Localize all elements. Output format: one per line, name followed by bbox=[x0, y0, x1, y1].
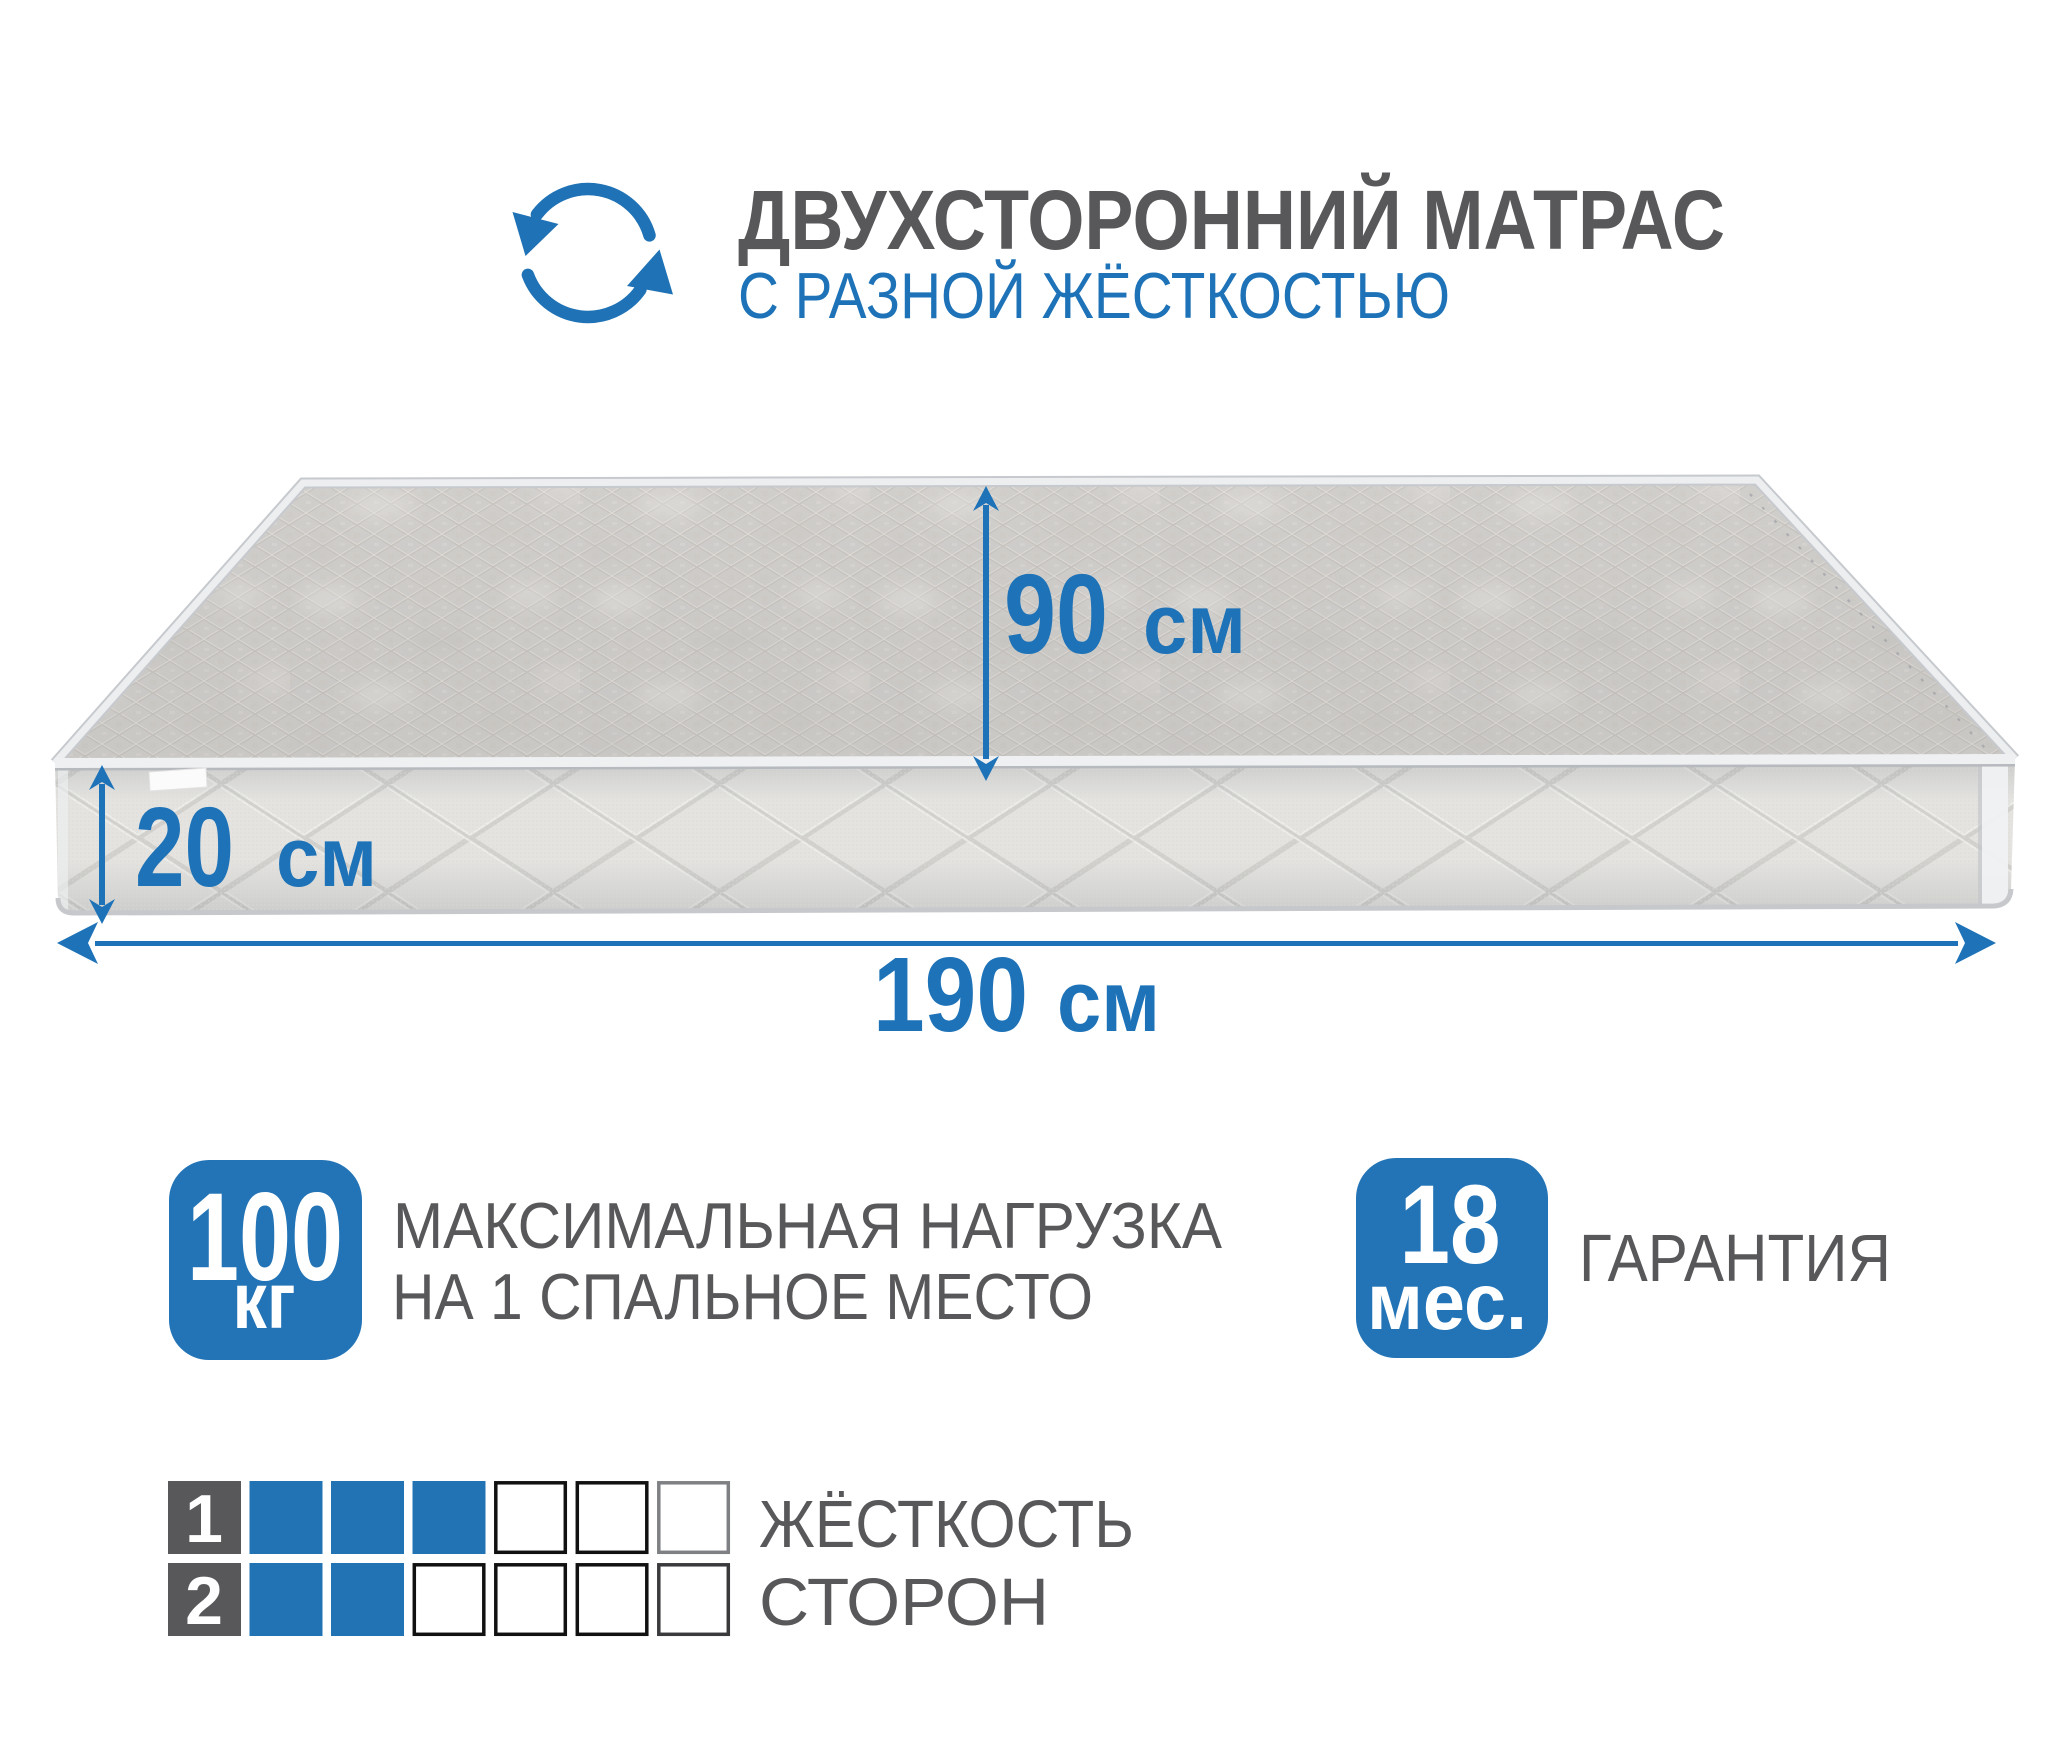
svg-text:см: см bbox=[276, 810, 377, 904]
svg-text:НА 1 СПАЛЬНОЕ МЕСТО: НА 1 СПАЛЬНОЕ МЕСТО bbox=[392, 1260, 1093, 1333]
svg-text:СТОРОН: СТОРОН bbox=[759, 1565, 1049, 1640]
svg-text:МАКСИМАЛЬНАЯ НАГРУЗКА: МАКСИМАЛЬНАЯ НАГРУЗКА bbox=[393, 1189, 1223, 1262]
svg-text:1: 1 bbox=[185, 1481, 223, 1557]
svg-text:см: см bbox=[1057, 954, 1160, 1050]
svg-text:20: 20 bbox=[135, 784, 234, 910]
svg-text:мес.: мес. bbox=[1367, 1257, 1527, 1346]
svg-text:190: 190 bbox=[873, 936, 1028, 1054]
svg-text:кг: кг bbox=[233, 1256, 296, 1345]
svg-text:ДВУХСТОРОННИЙ МАТРАС: ДВУХСТОРОННИЙ МАТРАС bbox=[738, 173, 1725, 267]
svg-text:90: 90 bbox=[1004, 551, 1108, 677]
svg-text:ЖЁСТКОСТЬ: ЖЁСТКОСТЬ bbox=[759, 1487, 1134, 1562]
svg-text:ГАРАНТИЯ: ГАРАНТИЯ bbox=[1579, 1221, 1891, 1296]
svg-text:см: см bbox=[1143, 577, 1246, 671]
svg-text:С РАЗНОЙ ЖЁСТКОСТЬЮ: С РАЗНОЙ ЖЁСТКОСТЬЮ bbox=[738, 259, 1450, 332]
svg-text:2: 2 bbox=[185, 1563, 223, 1639]
